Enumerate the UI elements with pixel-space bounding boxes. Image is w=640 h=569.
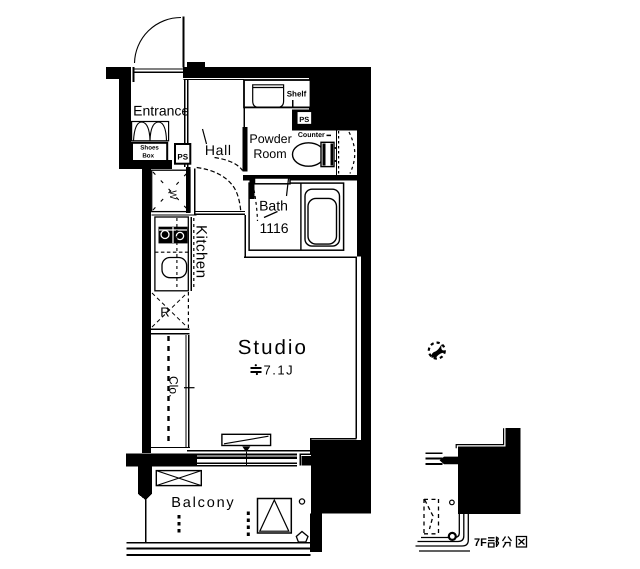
svg-text:Bath: Bath	[259, 198, 288, 214]
svg-text:7F: 7F	[474, 537, 487, 549]
svg-text:Box: Box	[142, 153, 154, 160]
svg-text:R: R	[160, 305, 169, 320]
svg-text:Powder: Powder	[249, 132, 291, 146]
svg-text:7.1J: 7.1J	[264, 363, 295, 378]
svg-text:PS: PS	[177, 153, 188, 162]
svg-text:Studio: Studio	[238, 336, 308, 359]
svg-text:Counter: Counter	[298, 132, 325, 139]
svg-text:Entrance: Entrance	[133, 102, 189, 118]
svg-text:Kitchen: Kitchen	[193, 225, 210, 279]
svg-text:Hall: Hall	[205, 142, 232, 158]
svg-text:Room: Room	[253, 147, 286, 161]
svg-text:Balcony: Balcony	[171, 495, 235, 511]
svg-text:Shelf: Shelf	[287, 90, 307, 99]
svg-text:Clo.: Clo.	[167, 376, 181, 397]
svg-text:W: W	[167, 190, 178, 199]
svg-text:1116: 1116	[259, 220, 288, 236]
svg-text:PS: PS	[299, 115, 309, 124]
svg-text:Shoes: Shoes	[140, 144, 159, 151]
